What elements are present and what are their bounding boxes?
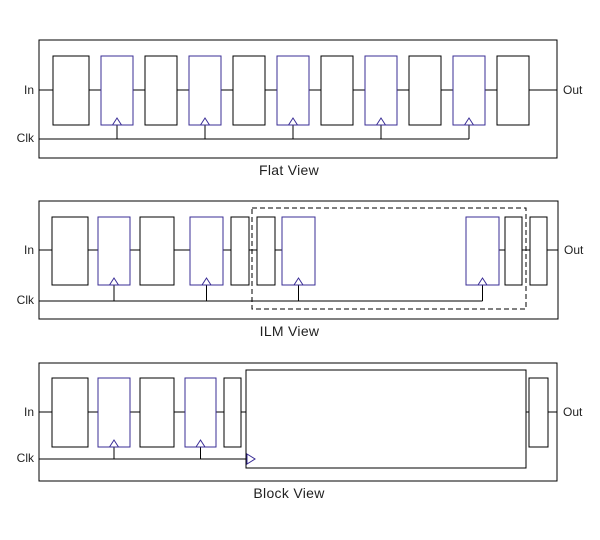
buffer-block [145,56,177,125]
buffer-block [52,217,88,285]
flipflop-block [453,56,485,125]
flipflop-block [282,217,315,285]
buffer-block [321,56,353,125]
flipflop-block [466,217,499,285]
pin-block [224,378,241,447]
flat-view-caption: Flat View [259,162,320,178]
in-label: In [24,405,34,419]
ilm-view: InClkOutILM View [17,201,584,339]
ilm-view-caption: ILM View [260,323,320,339]
in-label: In [24,83,34,97]
buffer-block [233,56,265,125]
flipflop-block [98,217,130,285]
buffer-block [140,217,174,285]
flipflop-block [101,56,133,125]
diagram-canvas: InClkOutFlat ViewInClkOutILM ViewInClkOu… [0,0,600,540]
pin-block [505,217,522,285]
clk-label: Clk [17,131,35,145]
block-view-caption: Block View [253,485,325,501]
flat-view: InClkOutFlat View [17,40,583,178]
buffer-block [409,56,441,125]
flipflop-block [365,56,397,125]
buffer-block [53,56,89,125]
flipflop-block [98,378,130,447]
in-label: In [24,243,34,257]
out-label: Out [563,405,583,419]
buffer-block [497,56,529,125]
pin-block [529,378,548,447]
out-label: Out [563,83,583,97]
buffer-block [52,378,88,447]
buffer-block [140,378,174,447]
clk-label: Clk [17,451,35,465]
flipflop-block [189,56,221,125]
pin-block [257,217,275,285]
flipflop-block [190,217,223,285]
out-label: Out [564,243,584,257]
pin-block [231,217,249,285]
clk-label: Clk [17,293,35,307]
flipflop-block [185,378,216,447]
macro-block [246,370,526,468]
hierarchy-views-diagram: InClkOutFlat ViewInClkOutILM ViewInClkOu… [0,0,600,540]
pin-block [530,217,547,285]
block-view: InClkOutBlock View [17,363,583,501]
flipflop-block [277,56,309,125]
